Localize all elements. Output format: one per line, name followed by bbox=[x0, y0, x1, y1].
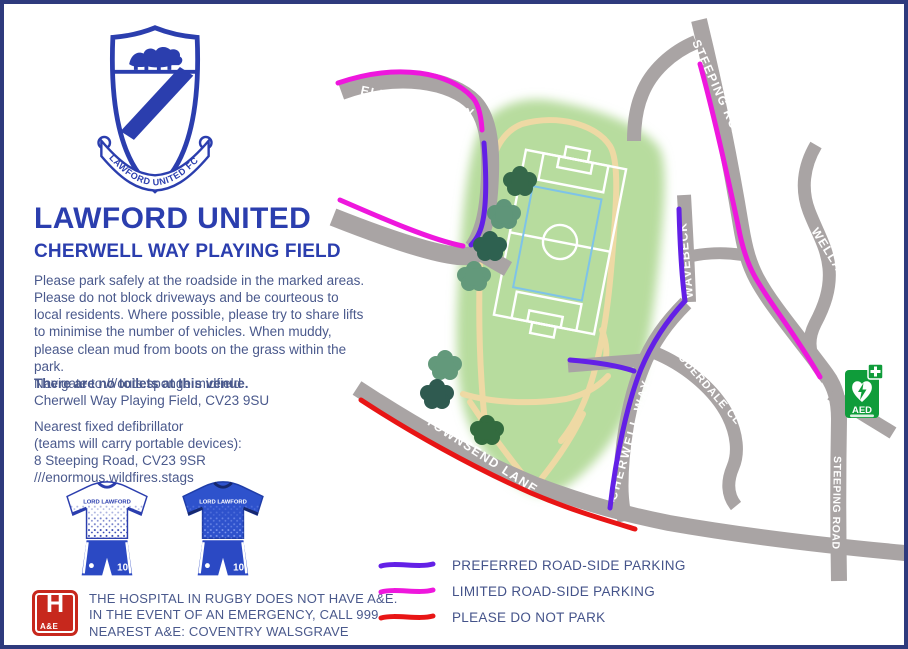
no-park-line-swatch bbox=[378, 612, 436, 622]
parking-instructions: Please park safely at the roadside in th… bbox=[34, 272, 370, 392]
hospital-icon-letter: H bbox=[32, 592, 78, 617]
road-wavebeck-connector bbox=[687, 253, 742, 257]
aed-icon: AED bbox=[845, 364, 883, 418]
club-crest: LAWFORD UNITED FC bbox=[96, 22, 214, 204]
label-lauderdale-close: LAUDERDALE CL bbox=[665, 339, 744, 427]
hospital-notice-text: THE HOSPITAL IN RUGBY DOES NOT HAVE A&E.… bbox=[89, 590, 398, 640]
hospital-icon-ae: A&E bbox=[40, 622, 58, 631]
away-sponsor: LORD LAWFORD bbox=[199, 499, 247, 505]
legend-label: PREFERRED ROAD-SIDE PARKING bbox=[452, 558, 686, 573]
road-welland bbox=[804, 145, 829, 379]
home-number: 10 bbox=[117, 562, 128, 573]
navigate-line: Navigate to ///outs.sponge.midfield bbox=[34, 375, 370, 392]
legend-label: PLEASE DO NOT PARK bbox=[452, 610, 605, 625]
label-steeping-road-bottom: STEEPING ROAD bbox=[829, 456, 843, 550]
legend-label: LIMITED ROAD-SIDE PARKING bbox=[452, 584, 655, 599]
legend-item-preferred: PREFERRED ROAD-SIDE PARKING bbox=[378, 552, 686, 578]
aed-label: AED bbox=[852, 405, 872, 416]
map-legend: PREFERRED ROAD-SIDE PARKING LIMITED ROAD… bbox=[378, 552, 686, 630]
legend-item-no-park: PLEASE DO NOT PARK bbox=[378, 604, 686, 630]
limited-line-swatch bbox=[378, 586, 436, 596]
home-kit: LORD LAWFORD 10 bbox=[58, 476, 156, 588]
home-sponsor: LORD LAWFORD bbox=[83, 499, 131, 505]
page-subtitle: CHERWELL WAY PLAYING FIELD bbox=[34, 241, 374, 263]
hospital-notice: H A&E THE HOSPITAL IN RUGBY DOES NOT HAV… bbox=[32, 590, 398, 640]
road-steeping-hook bbox=[634, 42, 696, 141]
legend-item-limited: LIMITED ROAD-SIDE PARKING bbox=[378, 578, 686, 604]
away-number: 10 bbox=[233, 562, 244, 573]
preferred-line-swatch bbox=[378, 560, 436, 570]
flyer-page: ELIZABETH WAY STEEPING ROAD WAVEBECK WEL… bbox=[0, 0, 908, 649]
parking-paragraph: Please park safely at the roadside in th… bbox=[34, 273, 364, 374]
page-title: LAWFORD UNITED bbox=[34, 202, 374, 236]
away-kit: LORD LAWFORD 10 bbox=[174, 476, 272, 588]
team-kits: LORD LAWFORD 10 LORD LAW bbox=[58, 476, 272, 588]
hospital-icon: H A&E bbox=[32, 590, 78, 636]
aed-small-print bbox=[850, 415, 874, 418]
navigation-info: Navigate to ///outs.sponge.midfield Cher… bbox=[34, 375, 370, 409]
venue-address: Cherwell Way Playing Field, CV23 9SU bbox=[34, 392, 370, 409]
